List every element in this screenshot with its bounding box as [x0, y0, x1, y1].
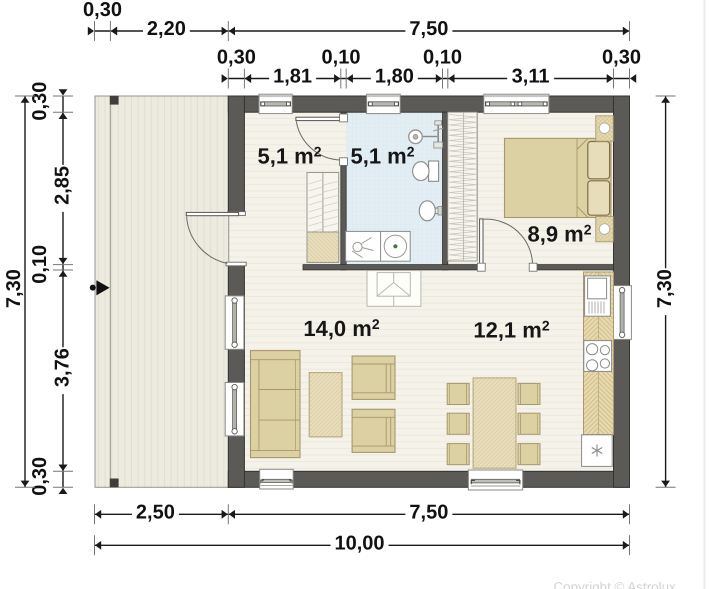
- svg-text:1,81: 1,81: [273, 66, 312, 88]
- svg-text:7,50: 7,50: [409, 18, 448, 40]
- svg-text:0,10: 0,10: [29, 245, 51, 284]
- svg-text:2,50: 2,50: [136, 501, 175, 523]
- svg-text:1,80: 1,80: [375, 66, 414, 88]
- svg-text:2,20: 2,20: [147, 18, 186, 40]
- svg-text:7,30: 7,30: [654, 269, 676, 308]
- svg-text:10,00: 10,00: [334, 532, 384, 554]
- svg-text:0,30: 0,30: [29, 82, 51, 121]
- svg-text:7,30: 7,30: [3, 269, 25, 308]
- svg-text:14,0 m2: 14,0 m2: [303, 316, 380, 341]
- svg-text:3,76: 3,76: [51, 348, 73, 387]
- svg-text:3,11: 3,11: [512, 66, 550, 88]
- svg-text:12,1 m2: 12,1 m2: [473, 318, 550, 343]
- svg-text:8,9 m2: 8,9 m2: [527, 222, 591, 247]
- svg-text:5,1 m2: 5,1 m2: [257, 144, 321, 169]
- svg-text:0,10: 0,10: [322, 47, 361, 69]
- svg-text:5,1 m2: 5,1 m2: [350, 144, 414, 169]
- svg-text:Copyright © Astrolux: Copyright © Astrolux: [554, 580, 677, 589]
- svg-text:0,30: 0,30: [602, 47, 641, 69]
- svg-text:2,85: 2,85: [51, 166, 73, 205]
- svg-text:0,30: 0,30: [29, 457, 51, 496]
- svg-text:0,30: 0,30: [83, 0, 122, 21]
- svg-text:7,50: 7,50: [409, 501, 448, 523]
- svg-text:0,30: 0,30: [217, 47, 256, 69]
- svg-text:0,10: 0,10: [423, 47, 462, 69]
